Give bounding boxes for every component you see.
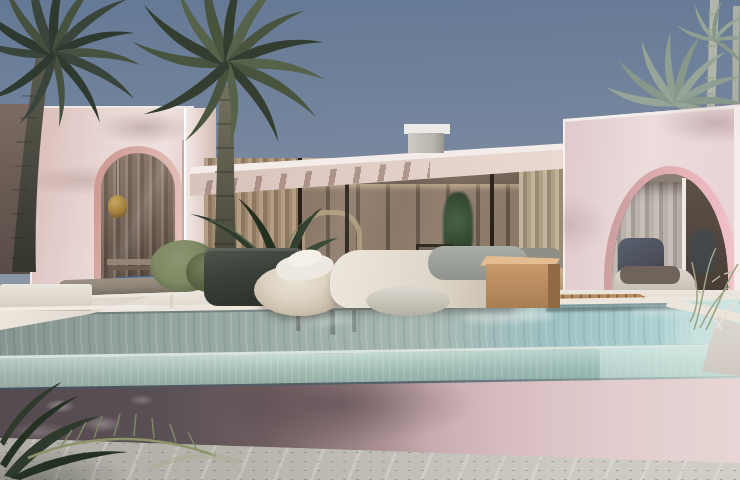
gray-ottoman xyxy=(366,286,450,316)
wooden-side-table-side xyxy=(548,264,560,308)
palm-crown-small xyxy=(675,0,740,66)
villa-pool-scene xyxy=(0,0,740,480)
water-reflection-light xyxy=(460,309,555,323)
foreground-palm-fronds xyxy=(0,336,240,480)
water-reflection-light xyxy=(290,316,354,325)
dry-plant-right xyxy=(686,242,740,334)
lounge-chair-seat xyxy=(620,266,680,284)
roof-chimney xyxy=(408,133,444,153)
wooden-side-table xyxy=(486,264,548,308)
